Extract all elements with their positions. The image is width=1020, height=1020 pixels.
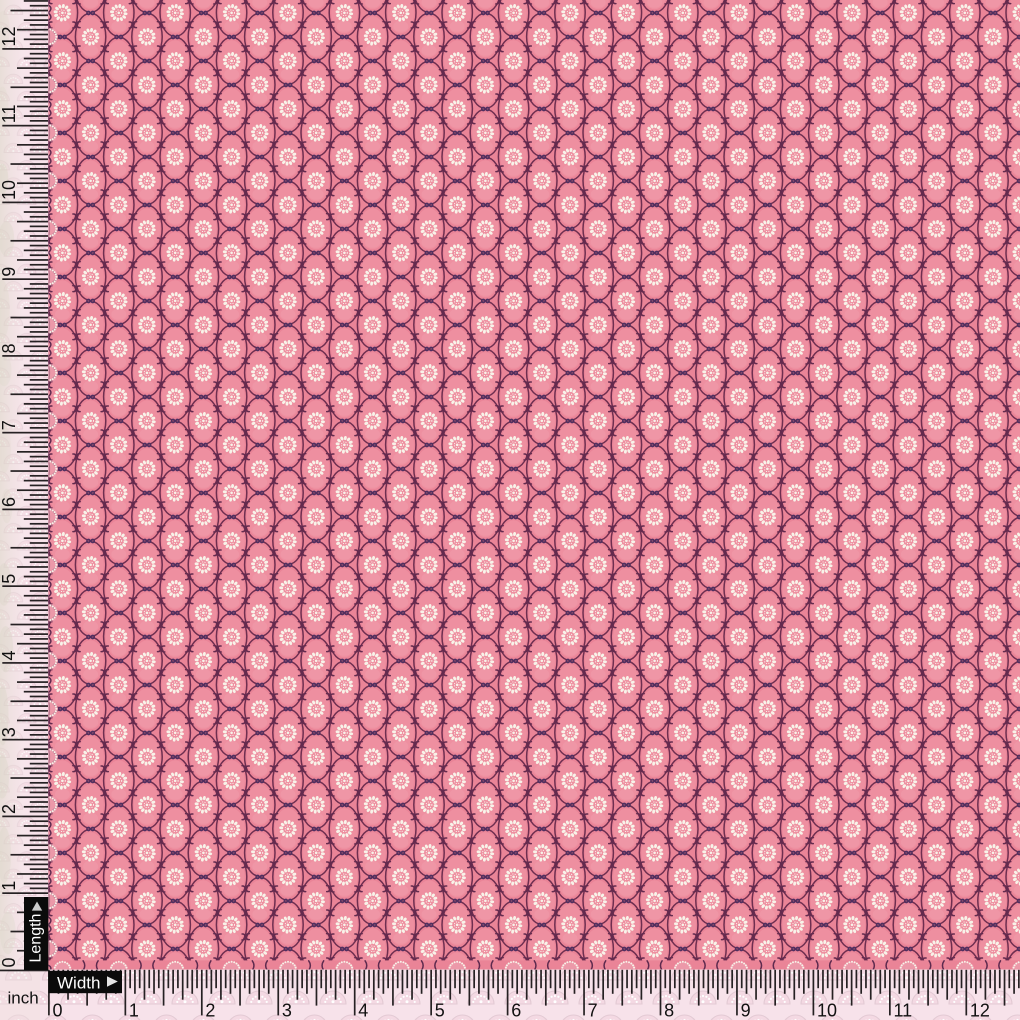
svg-text:1: 1 (0, 881, 19, 891)
svg-text:5: 5 (0, 574, 19, 584)
svg-text:11: 11 (894, 1001, 913, 1020)
svg-text:6: 6 (511, 1001, 521, 1020)
svg-text:4: 4 (0, 650, 19, 660)
svg-text:Length: Length (28, 914, 45, 963)
svg-text:6: 6 (0, 497, 19, 507)
svg-text:inch: inch (8, 989, 39, 1008)
svg-text:8: 8 (664, 1001, 674, 1020)
svg-text:8: 8 (0, 343, 19, 353)
svg-text:11: 11 (0, 105, 19, 124)
svg-text:0: 0 (53, 1001, 63, 1020)
svg-text:3: 3 (0, 727, 19, 737)
svg-text:10: 10 (0, 180, 19, 200)
svg-text:1: 1 (129, 1001, 139, 1020)
svg-text:10: 10 (817, 1001, 837, 1020)
svg-text:12: 12 (970, 1001, 990, 1020)
svg-text:7: 7 (0, 420, 19, 430)
svg-text:12: 12 (0, 26, 19, 46)
svg-text:9: 9 (0, 267, 19, 277)
svg-text:3: 3 (282, 1001, 292, 1020)
svg-text:Width: Width (57, 974, 100, 993)
svg-text:5: 5 (435, 1001, 445, 1020)
svg-text:2: 2 (0, 804, 19, 814)
svg-text:0: 0 (0, 957, 19, 967)
svg-text:2: 2 (205, 1001, 215, 1020)
svg-text:4: 4 (358, 1001, 368, 1020)
svg-text:7: 7 (588, 1001, 598, 1020)
svg-text:9: 9 (741, 1001, 751, 1020)
